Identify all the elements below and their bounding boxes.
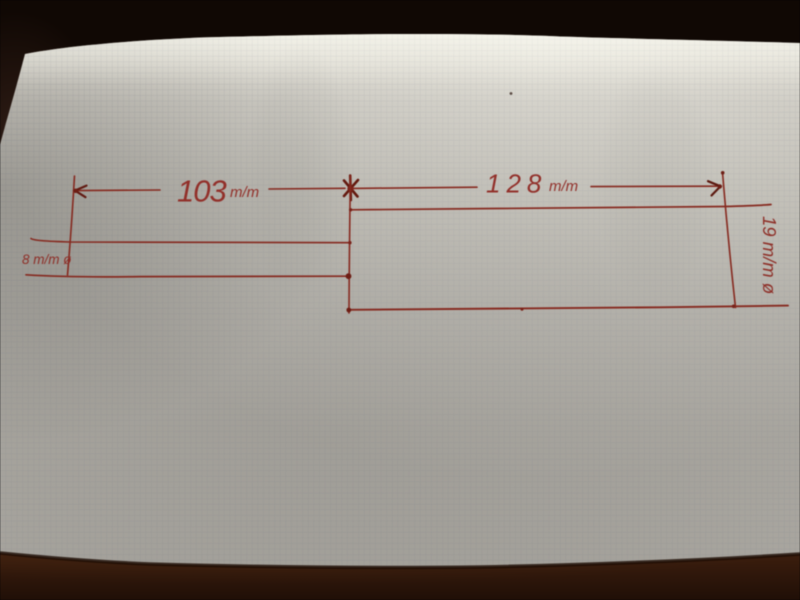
svg-text:19 m/m ø: 19 m/m ø xyxy=(759,216,780,294)
svg-text:128: 128 xyxy=(486,169,547,199)
svg-text:103: 103 xyxy=(177,174,226,209)
svg-text:8 m/m ø: 8 m/m ø xyxy=(22,252,72,267)
svg-text:m/m: m/m xyxy=(549,178,578,195)
svg-text:m/m: m/m xyxy=(230,184,259,201)
